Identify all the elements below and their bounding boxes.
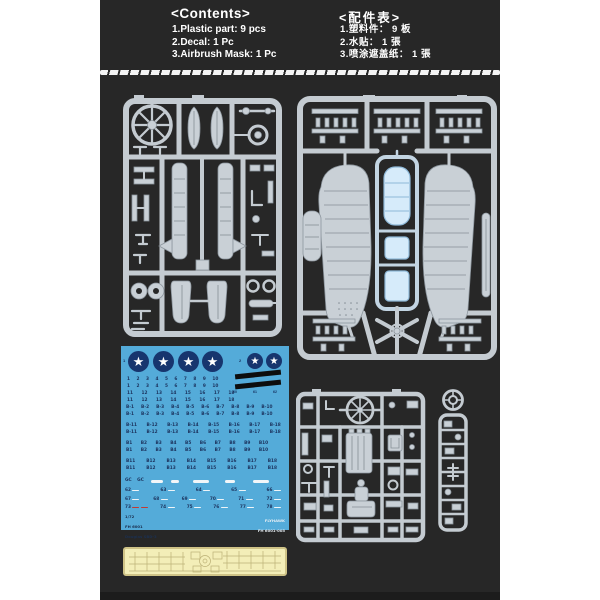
contents-list: 1.Plastic part: 9 pcs 2.Decal: 1 Pc 3.Ai…	[172, 24, 276, 62]
decal-code-row: B-11 B-12 B-13 B-14 B-15 B-16 B-17 B-18	[126, 430, 281, 435]
stripe-index-label: 61	[253, 390, 257, 394]
decal-footer-right: FLYHAWK FH 6001-005	[258, 513, 285, 538]
black-stripe-decal	[235, 379, 281, 389]
seat-part	[388, 435, 402, 451]
sprue-a-graphic	[122, 95, 283, 340]
sprue-c-graphic	[296, 389, 426, 544]
contents-item-decal: 2.Decal: 1 Pc	[172, 37, 276, 50]
decal-code-row: B1 B2 B3 B4 B5 B6 B7 B8 B9 B10	[126, 441, 268, 446]
decal-code-row: B-1 B-2 B-3 B-4 B-5 B-6 B-7 B-8 B-9 B-10	[126, 412, 272, 417]
decal-number-row: 1 2 3 4 5 6 7 8 9 10	[127, 377, 218, 382]
decal-code-row: B-11 B-12 B-13 B-14 B-15 B-16 B-17 B-18	[126, 423, 281, 428]
airbrush-mask-sheet	[123, 547, 287, 577]
clear-parts-unit	[377, 151, 417, 309]
white-stripe-decal	[193, 480, 209, 483]
figure-part	[355, 480, 368, 502]
decal-code-row: B11 B12 B13 B14 B15 B16 B17 B18	[126, 466, 277, 471]
flap-strip-part	[482, 213, 490, 297]
decal-number-row: 11 12 13 14 15 16 17 18	[127, 398, 234, 403]
decal-dash-row: 67 68 69 70 71 72	[125, 497, 281, 502]
decal-dash-row: 62 63 64 65 66	[125, 488, 281, 493]
decal-group-label-1: 1	[123, 358, 125, 363]
decal-sheet: 1 ★ ★ ★ ★ 2 ★ ★ 1 2 3 4 5 6 7 8 9 10 1 2…	[121, 346, 289, 530]
radial-engine-part	[133, 101, 171, 144]
star-insignia-decal-small: ★	[266, 353, 282, 369]
decal-gc-row: GC GC	[125, 478, 144, 483]
decal-number-row: 11 12 13 14 15 16 17 18	[127, 391, 234, 396]
white-stripe-decal	[171, 480, 179, 483]
decal-footer-left: 1/72 FH 6001 Douglas SBD-3	[125, 509, 157, 544]
decal-code-row: B11 B12 B13 B14 B15 B16 B17 B18	[126, 459, 277, 464]
star-insignia-decal: ★	[128, 351, 149, 372]
cowl-half-parts	[171, 281, 227, 323]
blade-parts	[188, 107, 223, 149]
propeller-part	[377, 308, 417, 354]
contents-item-mask: 3.Airbrush Mask: 1 Pc	[172, 49, 276, 62]
star-insignia-decal: ★	[202, 351, 223, 372]
cowl-ring-part	[347, 501, 375, 517]
decal-group-label-2: 2	[239, 358, 241, 363]
stripe-index-label: 62	[273, 390, 277, 394]
landing-gear-small-parts	[134, 147, 166, 154]
white-stripe-decal	[253, 480, 269, 483]
white-stripe-decal	[225, 480, 235, 483]
parts-item-mask-zh: 3.喷涂遮盖纸： 1 張	[340, 49, 431, 62]
wheel-parts	[131, 283, 164, 329]
small-hatch-part	[196, 260, 209, 270]
star-insignia-decal: ★	[178, 351, 199, 372]
star-insignia-decal: ★	[153, 351, 174, 372]
ring-sight-part	[444, 391, 463, 410]
panel-bottom-strip	[100, 592, 500, 600]
parts-table-list-zh: 1.塑料件： 9 板 2.水贴： 1 張 3.喷涂遮盖纸： 1 張	[340, 24, 431, 62]
stripe-index-label: 60	[233, 390, 237, 394]
radial-engine-part-small	[340, 397, 382, 423]
windscreen-clear-part	[385, 237, 409, 259]
parts-item-plastic-zh: 1.塑料件： 9 板	[340, 24, 431, 37]
engine-cowling-part	[303, 211, 321, 261]
contents-title: <Contents>	[171, 6, 250, 21]
sidewall-small-parts-right	[250, 165, 274, 256]
parts-item-decal-zh: 2.水贴： 1 張	[340, 37, 431, 50]
hub-and-shaft-parts	[234, 108, 274, 145]
canopy-clear-part	[384, 167, 410, 225]
sidewall-small-parts-left	[132, 167, 154, 263]
black-stripe-decal	[235, 370, 281, 380]
rear-canopy-clear-part	[385, 271, 409, 301]
engine-accessory-part	[346, 429, 372, 473]
bomb-rack-parts-top	[312, 109, 482, 143]
star-insignia-decal-small: ★	[247, 353, 263, 369]
bottom-right-small-parts	[248, 281, 280, 321]
sprue-d-graphic	[436, 388, 470, 534]
contents-item-plastic: 1.Plastic part: 9 pcs	[172, 24, 276, 37]
white-stripe-decal	[151, 480, 163, 483]
rope-divider	[100, 70, 500, 75]
sprue-b-graphic	[297, 95, 497, 363]
kit-contents-page: <Contents> <配件表> 1.Plastic part: 9 pcs 2…	[0, 0, 600, 600]
decal-code-row: B1 B2 B3 B4 B5 B6 B7 B8 B9 B10	[126, 448, 268, 453]
decal-code-row: B-1 B-2 B-3 B-4 B-5 B-6 B-7 B-8 B-9 B-10	[126, 405, 272, 410]
decal-number-row: 1 2 3 4 5 6 7 8 9 10	[127, 384, 218, 389]
